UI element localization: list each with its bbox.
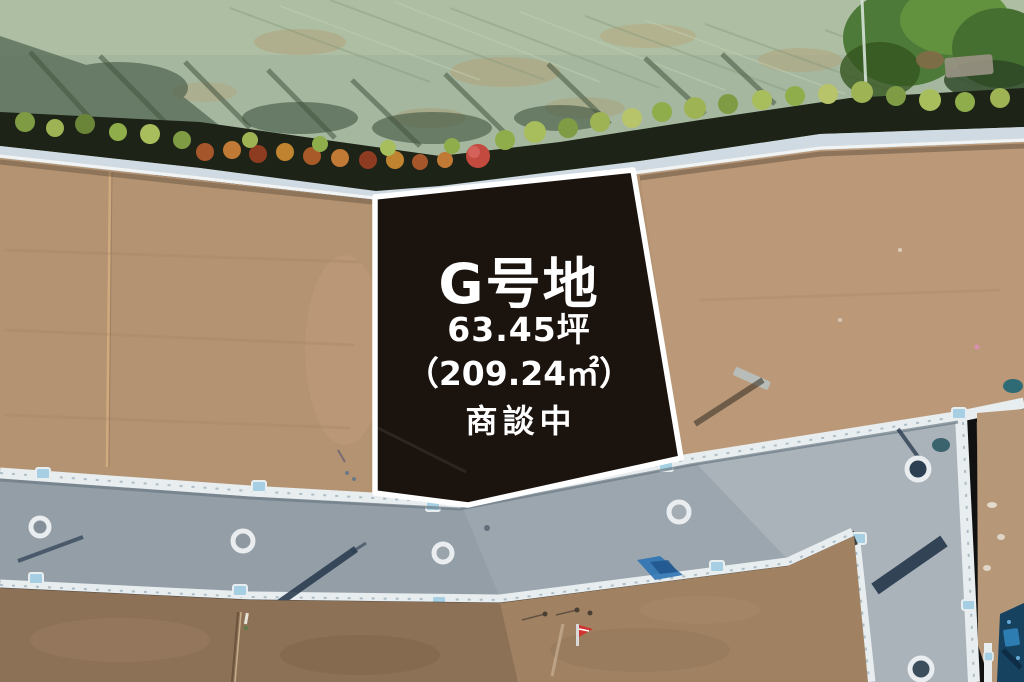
road-marking-spot [932, 438, 950, 452]
lot-overlay[interactable]: G号地 63.45坪 （209.24㎡） 商談中 [375, 170, 681, 505]
manhole [31, 518, 49, 536]
lot-area-tsubo: 63.45坪 [447, 310, 590, 349]
excavator [997, 603, 1024, 682]
manhole [910, 658, 932, 680]
lot-name: G号地 [438, 252, 599, 316]
aerial-photo: G号地 63.45坪 （209.24㎡） 商談中 [0, 0, 1024, 682]
lot-area-sqm: （209.24㎡） [406, 354, 632, 393]
aerial-photo-page: G号地 63.45坪 （209.24㎡） 商談中 [0, 0, 1024, 682]
teal-equipment [1003, 379, 1023, 393]
lot-status-badge: 商談中 [465, 402, 576, 440]
shed-roof [944, 54, 994, 78]
manhole [669, 502, 689, 522]
manhole [434, 544, 452, 562]
manhole [233, 531, 253, 551]
marker-flag-pole [576, 624, 579, 646]
manhole [907, 458, 929, 480]
